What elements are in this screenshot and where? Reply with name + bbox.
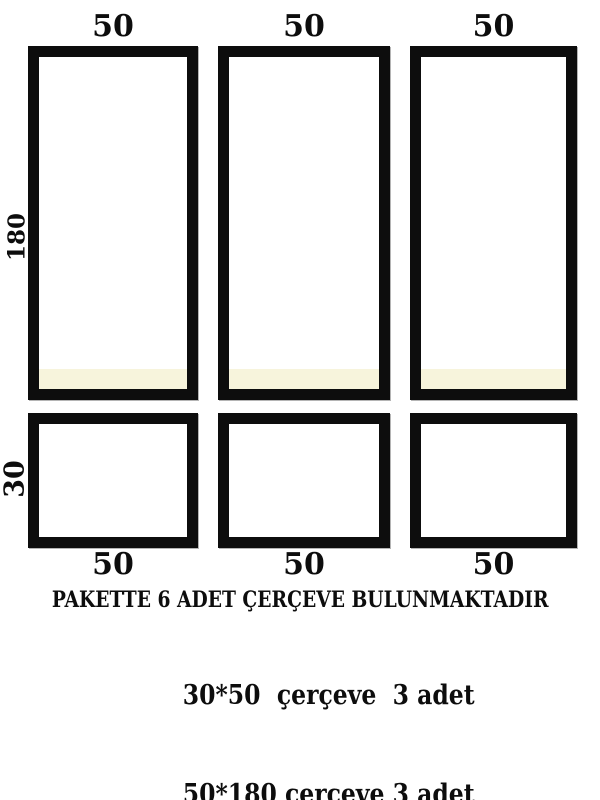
summary-line-30x50-text: 30*50 çerçeve 3 adet [182, 679, 474, 712]
frame-30x50-3 [410, 413, 577, 548]
frame-50x180-3 [410, 46, 577, 400]
package-caption-text: PAKETTE 6 ADET ÇERÇEVE BULUNMAKTADIR [52, 586, 549, 614]
summary-line-30x50: 30*50 çerçeve 3 adet [0, 646, 600, 745]
package-caption: PAKETTE 6 ADET ÇERÇEVE BULUNMAKTADIR [0, 586, 600, 614]
tall-frame-height-label: 180 [6, 213, 29, 261]
short-frame-1-width-label: 50 [28, 550, 198, 580]
contents-summary: 30*50 çerçeve 3 adet 50*180 çerçeve 3 ad… [0, 646, 600, 800]
frame-50x180-1 [28, 46, 198, 400]
frame-50x180-2-mat-band [229, 369, 379, 389]
product-diagram: 50 50 50 180 30 50 50 50 PAKETTE 6 ADET … [0, 0, 600, 800]
frame-30x50-2 [218, 413, 390, 548]
short-frame-3-width-label: 50 [410, 550, 577, 580]
short-frame-height-label: 30 [2, 460, 29, 498]
summary-line-50x180: 50*180 çerçeve 3 adet [0, 745, 600, 800]
frame-50x180-1-mat-band [39, 369, 187, 389]
frame-50x180-2 [218, 46, 390, 400]
tall-frame-1-width-label: 50 [28, 12, 198, 42]
tall-frame-3-width-label: 50 [410, 12, 577, 42]
tall-frame-2-width-label: 50 [218, 12, 390, 42]
summary-line-50x180-text: 50*180 çerçeve 3 adet [182, 778, 474, 800]
short-frame-2-width-label: 50 [218, 550, 390, 580]
frame-50x180-3-mat-band [421, 369, 566, 389]
frame-30x50-1 [28, 413, 198, 548]
